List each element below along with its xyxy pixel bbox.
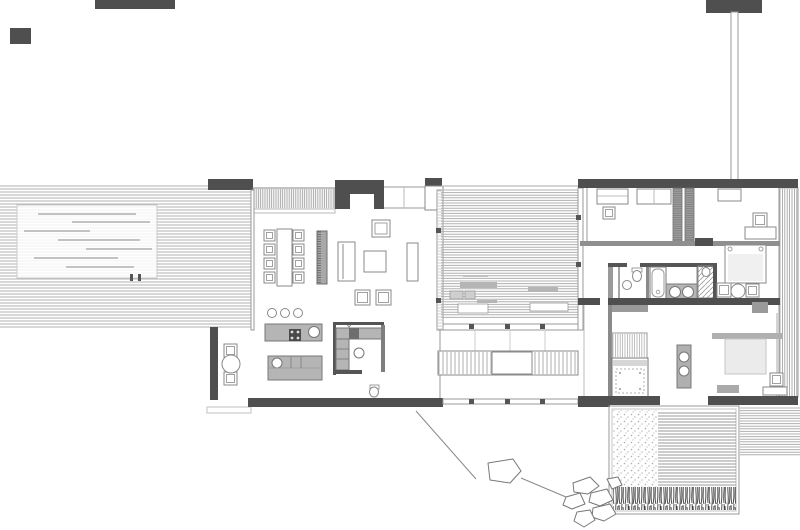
master-bed-foot	[728, 254, 763, 281]
south-wall-west	[248, 398, 443, 407]
deck-table	[450, 291, 463, 299]
deck-dash-bar	[463, 275, 488, 277]
courtyard-south-glass	[443, 324, 578, 330]
kitchen-west-wall	[210, 327, 218, 400]
mid-south-gap	[600, 298, 608, 305]
counter-sink	[272, 358, 282, 368]
bath-east-wall	[713, 263, 717, 300]
site-wall-top-right	[706, 0, 762, 13]
bath-west-wall	[608, 267, 613, 300]
dining-table	[277, 229, 292, 286]
wc-toilet	[370, 387, 379, 397]
mullion	[576, 215, 581, 220]
desk-chair	[603, 207, 615, 219]
dining-chair	[293, 230, 304, 241]
utility-cabinet-dark	[349, 328, 359, 339]
utility-sink	[354, 348, 364, 358]
rock	[574, 510, 595, 527]
deck-step-tick	[130, 274, 133, 281]
deck-mat	[530, 303, 568, 311]
suite-shelf	[712, 333, 783, 339]
deck-lounger	[528, 287, 558, 292]
tv-circle	[679, 352, 689, 362]
island-sink	[309, 327, 320, 338]
toilet	[633, 271, 642, 282]
site-wall-block	[10, 28, 31, 44]
vanity-sink	[683, 287, 694, 298]
suite-west-wall	[608, 305, 612, 400]
bath-door-gap	[627, 263, 640, 267]
burner	[297, 337, 300, 340]
quilt-dot	[639, 388, 641, 390]
tv-circle	[679, 366, 689, 376]
deck-step-tick	[138, 274, 141, 281]
north-wall-east	[578, 179, 798, 188]
mullion	[540, 399, 545, 404]
dining-chair	[264, 258, 275, 269]
corridor-wardrobe-box	[492, 352, 532, 374]
south-glass-wall	[443, 399, 578, 404]
suite-south-wall-east	[708, 396, 798, 405]
deck-table	[465, 291, 475, 299]
stepping-stone	[488, 459, 521, 483]
burner	[297, 331, 300, 334]
coffee-table	[364, 251, 386, 272]
bed-single	[597, 189, 628, 204]
site-wall-top	[95, 0, 175, 9]
cafe-table	[222, 355, 240, 373]
vanity-sink	[670, 287, 681, 298]
tub-wall	[646, 267, 649, 300]
deck-edge-outline	[207, 407, 251, 413]
north-louver-ledge	[253, 209, 335, 213]
mullion	[505, 399, 510, 404]
deck-mat	[458, 304, 488, 313]
east-louver-strip	[779, 188, 798, 397]
dining-chair	[264, 230, 275, 241]
wall-niche	[350, 194, 374, 209]
mullion	[469, 324, 474, 329]
bed-knob	[759, 247, 763, 251]
master-table	[731, 284, 745, 298]
sofa	[338, 242, 355, 281]
deck-bar	[477, 300, 497, 303]
mid-south-gray	[610, 305, 648, 312]
suite-south-wall-west	[578, 396, 660, 405]
master-chair	[746, 284, 759, 297]
dining-chair	[293, 272, 304, 283]
cafe-chair	[224, 372, 237, 385]
suite-chair	[770, 373, 783, 386]
divider-wall-block	[695, 238, 713, 246]
burner	[291, 337, 294, 340]
west-glass-wall	[251, 190, 254, 330]
mullion	[540, 324, 545, 329]
wall-block-north2	[425, 178, 442, 186]
suite-rug	[725, 339, 766, 374]
bar-stool	[294, 309, 303, 318]
bar-stool	[268, 309, 277, 318]
garden-path	[416, 411, 476, 479]
bed-knob	[728, 247, 732, 251]
mullion	[576, 262, 581, 267]
dining-chair	[293, 258, 304, 269]
utility-wall-bottom	[333, 370, 362, 374]
east-deck-boards	[740, 408, 800, 455]
garden-water	[658, 413, 736, 485]
garden-gravel	[613, 410, 658, 487]
quilt-dot	[619, 388, 621, 390]
courtyard-east-wall	[578, 188, 583, 330]
suite-desk	[763, 387, 787, 395]
bench	[407, 243, 418, 281]
mid-south-wall	[578, 298, 780, 305]
mullion	[469, 399, 474, 404]
wall-northwest-block	[208, 179, 253, 190]
garden-grass	[613, 487, 736, 510]
quilt-dot	[639, 372, 641, 374]
quilt-dot	[619, 372, 621, 374]
floor-plan-canvas	[0, 0, 800, 530]
wc-sink	[623, 281, 632, 290]
dining-chair	[264, 272, 275, 283]
mid-south-pillar	[752, 302, 768, 313]
cooktop	[289, 329, 301, 341]
utility-wall-right	[381, 325, 385, 372]
deck-lounger	[460, 282, 497, 288]
dining-chair	[264, 244, 275, 255]
burner	[291, 331, 294, 334]
utility-cabinet-left	[336, 339, 349, 370]
bar-stool	[281, 309, 290, 318]
garden-path	[521, 478, 573, 500]
utility-wall-top	[333, 322, 384, 325]
mullion	[505, 324, 510, 329]
floor-plan	[0, 0, 800, 530]
dining-chair	[293, 244, 304, 255]
rock	[573, 477, 599, 494]
bidet	[702, 268, 710, 277]
desk	[745, 227, 776, 239]
dresser	[718, 189, 741, 201]
site-wall-vertical	[731, 12, 738, 183]
mullion	[436, 298, 441, 303]
rock	[563, 493, 585, 509]
mullion	[436, 228, 441, 233]
book-ticks	[718, 385, 738, 393]
